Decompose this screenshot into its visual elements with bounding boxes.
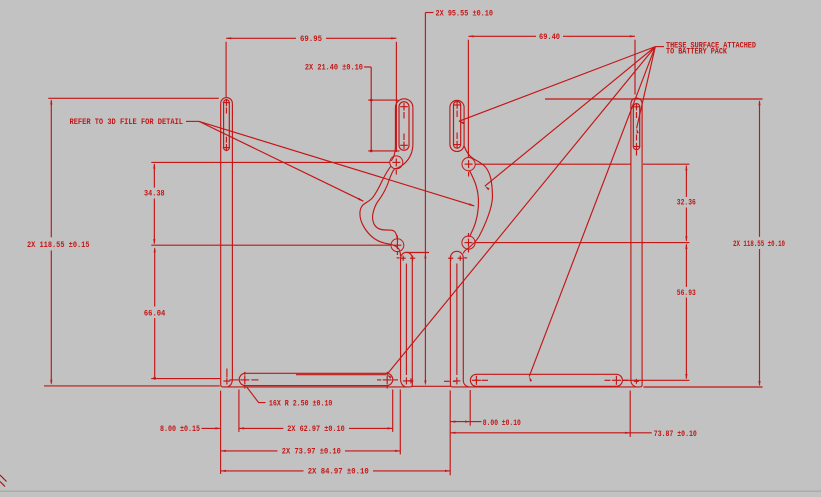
svg-text:34.38: 34.38 — [144, 189, 165, 199]
svg-text:2X 95.55 ±0.10: 2X 95.55 ±0.10 — [436, 8, 494, 18]
svg-text:2X 62.97 ±0.10: 2X 62.97 ±0.10 — [287, 424, 345, 434]
svg-text:56.93: 56.93 — [677, 288, 696, 298]
svg-text:2X 84.97 ±0.10: 2X 84.97 ±0.10 — [308, 467, 369, 477]
svg-text:TO BATTERY PACK: TO BATTERY PACK — [666, 47, 728, 57]
svg-text:2X 21.40 ±0.10: 2X 21.40 ±0.10 — [305, 63, 363, 73]
svg-text:16X R 2.50 ±0.10: 16X R 2.50 ±0.10 — [269, 399, 333, 409]
svg-text:69.40: 69.40 — [539, 32, 560, 42]
svg-text:REFER TO 3D FILE FOR DETAIL: REFER TO 3D FILE FOR DETAIL — [70, 117, 184, 127]
svg-text:2X 73.97 ±0.10: 2X 73.97 ±0.10 — [282, 447, 341, 457]
svg-text:8.00 ±0.15: 8.00 ±0.15 — [160, 424, 200, 434]
svg-text:2X 118.55 ±0.15: 2X 118.55 ±0.15 — [27, 240, 90, 250]
svg-text:8.00 ±0.10: 8.00 ±0.10 — [483, 418, 521, 428]
svg-text:69.95: 69.95 — [300, 34, 322, 44]
svg-text:73.87 ±0.10: 73.87 ±0.10 — [654, 429, 697, 439]
svg-text:2X 118.55 ±0.10: 2X 118.55 ±0.10 — [733, 239, 785, 249]
svg-text:32.36: 32.36 — [677, 198, 696, 208]
svg-text:66.04: 66.04 — [144, 308, 166, 318]
